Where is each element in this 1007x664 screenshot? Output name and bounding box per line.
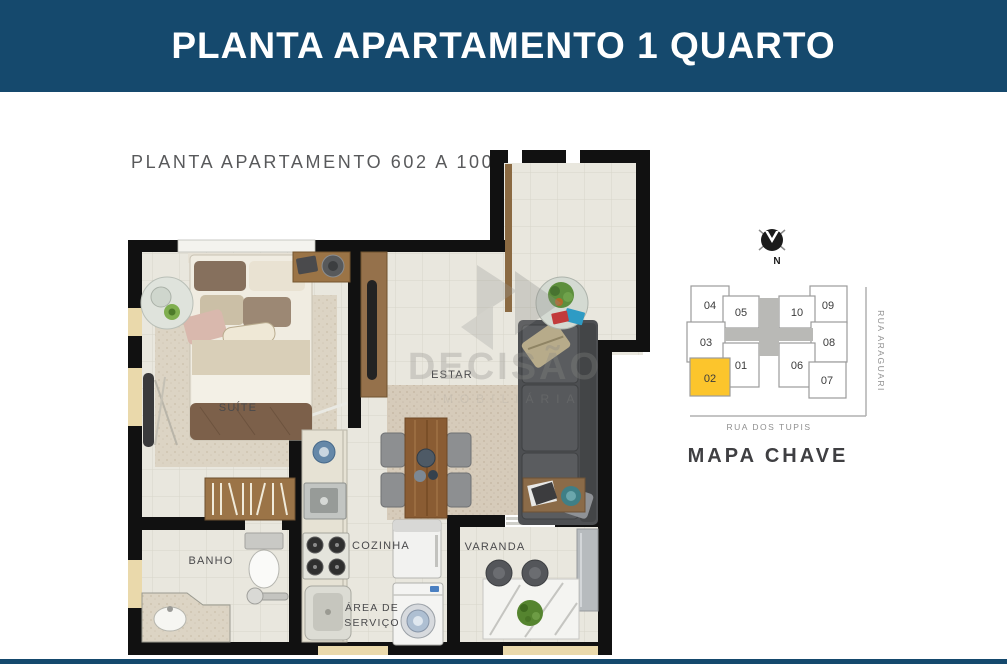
page: PLANTA APARTAMENTO 1 QUARTO PLANTA APART…: [0, 0, 1007, 664]
wardrobe: [205, 478, 295, 520]
area-servico-label-line1: ÁREA DE: [345, 601, 399, 614]
coffee-table: [523, 478, 585, 512]
key-map-title: MAPA CHAVE: [688, 445, 849, 467]
banho-label: BANHO: [188, 555, 233, 567]
area-servico-label-line2: SERVIÇO: [344, 617, 399, 629]
washing-machine: [393, 583, 443, 645]
varanda-label: VARANDA: [465, 541, 526, 553]
unit-07-label: 07: [821, 375, 833, 387]
north-label: N: [773, 256, 780, 267]
street-right-label: RUA ARAGUARI: [876, 310, 886, 392]
key-map: N 04 05 10 09 03 08 0: [665, 210, 995, 480]
floor-plan-drawing: SUÍTE ESTAR BANHO COZINHA VARANDA ÁREA D…: [125, 145, 655, 660]
suite-label: SUÍTE: [219, 401, 257, 414]
watermark-subtitle: IMOBILIÁRIA: [432, 391, 581, 406]
decor-bowl: [313, 441, 335, 463]
page-title: PLANTA APARTAMENTO 1 QUARTO: [171, 25, 835, 67]
suite-side-table: [141, 277, 193, 329]
unit-04-label: 04: [704, 300, 716, 312]
street-bottom-label: RUA DOS TUPIS: [727, 422, 812, 432]
unit-03-label: 03: [700, 337, 712, 349]
cozinha-label: COZINHA: [352, 540, 410, 552]
kitchen-sink: [304, 483, 346, 519]
footer-bar: [0, 659, 1007, 664]
unit-08-label: 08: [823, 337, 835, 349]
floor-plan: SUÍTE ESTAR BANHO COZINHA VARANDA ÁREA D…: [125, 145, 655, 660]
unit-05-label: 05: [735, 307, 747, 319]
unit-02-label: 02: [704, 373, 716, 385]
unit-09-label: 09: [822, 300, 834, 312]
suite-shelf: [293, 252, 350, 282]
compass-icon: [759, 229, 785, 251]
unit-01-label: 01: [735, 360, 747, 372]
tv-panel: [361, 252, 387, 397]
unit-10-label: 10: [791, 307, 803, 319]
header-banner: PLANTA APARTAMENTO 1 QUARTO: [0, 0, 1007, 92]
stove: [303, 533, 349, 579]
watermark-name: DECISÃO: [408, 344, 602, 388]
varanda-window: [577, 529, 598, 611]
unit-06-label: 06: [791, 360, 803, 372]
key-map-drawing: N 04 05 10 09 03 08 0: [665, 210, 995, 480]
